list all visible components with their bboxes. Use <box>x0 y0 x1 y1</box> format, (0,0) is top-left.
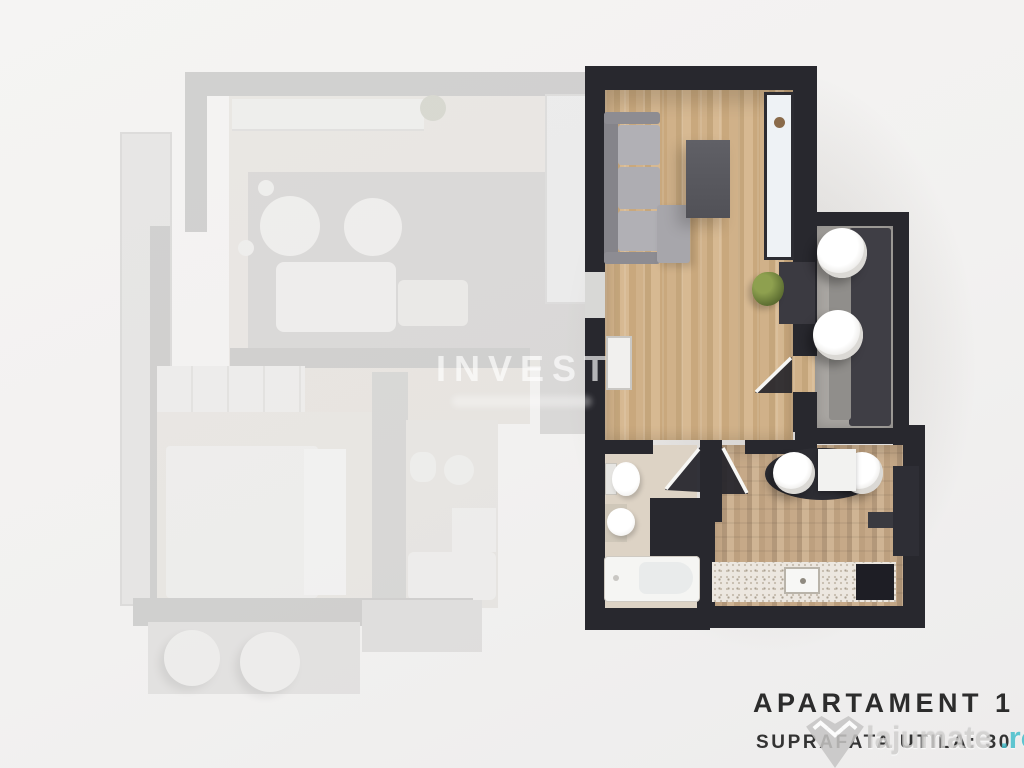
credenza <box>779 262 815 324</box>
wall-left-window <box>585 272 605 318</box>
bathroom-wall-bottom <box>585 608 710 630</box>
fridge <box>893 466 919 556</box>
floorplan-render: INVEST APARTAMENT 1 SUPRAFATA UTILA: 30 … <box>0 0 1024 768</box>
kitchen-wall-bottom <box>700 606 925 628</box>
bathtub-basin <box>639 562 693 594</box>
kitchen-faucet <box>800 578 806 584</box>
door-swings <box>600 340 820 510</box>
sofa-cushion <box>618 211 660 251</box>
sofa-armrest <box>604 252 660 264</box>
dining-table-top <box>818 449 856 491</box>
lajumate-tld: .ro <box>1000 720 1024 756</box>
sofa-back <box>604 112 618 264</box>
stove <box>856 564 894 600</box>
sofa-armrest <box>604 112 660 124</box>
lajumate-heart-icon <box>806 716 864 768</box>
bathtub <box>604 556 700 602</box>
lajumate-watermark: lajumate .ro <box>804 708 1024 768</box>
balcony-wall-right <box>893 212 909 444</box>
lajumate-name: lajumate <box>866 720 992 756</box>
invest-watermark: INVEST <box>436 348 614 390</box>
sofa <box>604 112 692 264</box>
tv-unit <box>686 140 730 218</box>
balcony-wall-top <box>795 212 907 226</box>
balcony-chair <box>813 310 863 360</box>
sofa-cushion <box>618 125 660 165</box>
kitchen-sink <box>784 567 820 594</box>
wall-top <box>585 66 817 90</box>
invest-watermark-subline <box>452 396 592 407</box>
window-strip <box>764 92 794 260</box>
window-handle <box>774 117 785 128</box>
wall-left-upper <box>585 66 605 272</box>
balcony-chair <box>817 228 867 278</box>
sofa-cushion <box>618 167 660 209</box>
sink <box>607 508 635 536</box>
bathtub-drain <box>613 575 619 581</box>
